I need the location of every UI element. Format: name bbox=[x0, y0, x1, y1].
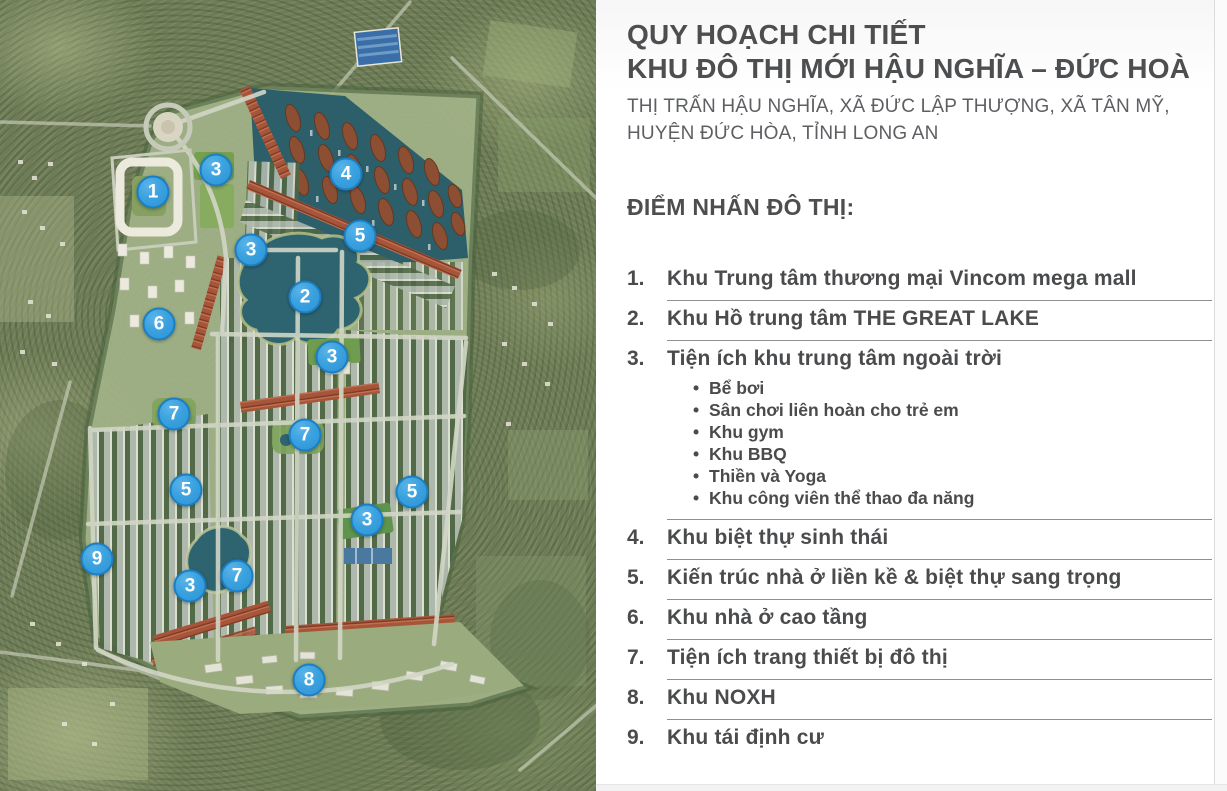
list-item-2: 2. Khu Hồ trung tâm THE GREAT LAKE bbox=[627, 301, 1212, 341]
slide: 13453263775539738 QUY HOẠCH CHI TIẾT KHU… bbox=[0, 0, 1227, 791]
item-number: 5. bbox=[627, 560, 667, 600]
map-marker-1: 1 bbox=[137, 176, 170, 209]
map-marker-4: 4 bbox=[330, 158, 363, 191]
map-marker-3: 3 bbox=[235, 234, 268, 267]
item-number: 1. bbox=[627, 261, 667, 301]
panel-right-strip bbox=[1215, 0, 1227, 791]
map-marker-5: 5 bbox=[396, 476, 429, 509]
sub-bullet: •Sân chơi liên hoàn cho trẻ em bbox=[693, 399, 1212, 421]
item-number: 8. bbox=[627, 680, 667, 720]
map-marker-3: 3 bbox=[200, 154, 233, 187]
map-marker-7: 7 bbox=[289, 419, 322, 452]
item-label: Khu biệt thự sinh thái bbox=[667, 520, 1212, 559]
item-label: Tiện ích khu trung tâm ngoài trời bbox=[667, 341, 1212, 380]
sub-bullet-list: •Bể bơi •Sân chơi liên hoàn cho trẻ em •… bbox=[667, 377, 1212, 519]
sub-bullet: •Khu gym bbox=[693, 421, 1212, 443]
map-marker-5: 5 bbox=[344, 220, 377, 253]
sub-bullet: •Khu công viên thể thao đa năng bbox=[693, 487, 1212, 509]
list-item-8: 8. Khu NOXH bbox=[627, 680, 1212, 720]
list-item-9: 9. Khu tái định cư bbox=[627, 720, 1212, 759]
bullet-icon: • bbox=[693, 487, 709, 509]
item-label: Khu NOXH bbox=[667, 680, 1212, 719]
sub-bullet: •Thiền và Yoga bbox=[693, 465, 1212, 487]
list-item-6: 6. Khu nhà ở cao tầng bbox=[627, 600, 1212, 640]
sub-bullet: •Bể bơi bbox=[693, 377, 1212, 399]
sub-bullet: •Khu BBQ bbox=[693, 443, 1212, 465]
master-plan-map: 13453263775539738 bbox=[0, 0, 596, 791]
map-marker-8: 8 bbox=[293, 664, 326, 697]
list-item-4: 4. Khu biệt thự sinh thái bbox=[627, 520, 1212, 560]
item-number: 6. bbox=[627, 600, 667, 640]
item-number: 4. bbox=[627, 520, 667, 560]
title-line-1: QUY HOẠCH CHI TIẾT bbox=[627, 18, 1213, 52]
list-item-1: 1. Khu Trung tâm thương mại Vincom mega … bbox=[627, 261, 1212, 301]
bullet-icon: • bbox=[693, 399, 709, 421]
list-item-5: 5. Kiến trúc nhà ở liền kề & biệt thự sa… bbox=[627, 560, 1212, 600]
highlight-list: 1. Khu Trung tâm thương mại Vincom mega … bbox=[627, 261, 1213, 759]
map-marker-7: 7 bbox=[158, 398, 191, 431]
map-marker-layer: 13453263775539738 bbox=[0, 0, 596, 791]
bullet-icon: • bbox=[693, 377, 709, 399]
map-marker-9: 9 bbox=[81, 543, 114, 576]
page-title: QUY HOẠCH CHI TIẾT KHU ĐÔ THỊ MỚI HẬU NG… bbox=[627, 18, 1213, 86]
bullet-icon: • bbox=[693, 465, 709, 487]
item-label: Khu Trung tâm thương mại Vincom mega mal… bbox=[667, 261, 1212, 300]
map-marker-6: 6 bbox=[143, 308, 176, 341]
item-label: Tiện ích trang thiết bị đô thị bbox=[667, 640, 1212, 679]
info-panel: QUY HOẠCH CHI TIẾT KHU ĐÔ THỊ MỚI HẬU NG… bbox=[596, 0, 1227, 791]
location-subtitle: THỊ TRẤN HẬU NGHĨA, XÃ ĐỨC LẬP THƯỢNG, X… bbox=[627, 93, 1213, 147]
item-label: Khu nhà ở cao tầng bbox=[667, 600, 1212, 639]
item-label: Khu tái định cư bbox=[667, 720, 1212, 759]
map-marker-7: 7 bbox=[221, 560, 254, 593]
item-number: 9. bbox=[627, 720, 667, 759]
panel-bottom-strip bbox=[596, 784, 1227, 791]
map-marker-3: 3 bbox=[316, 341, 349, 374]
map-marker-5: 5 bbox=[170, 474, 203, 507]
subtitle-line-2: HUYỆN ĐỨC HÒA, TỈNH LONG AN bbox=[627, 120, 1213, 147]
subtitle-line-1: THỊ TRẤN HẬU NGHĨA, XÃ ĐỨC LẬP THƯỢNG, X… bbox=[627, 93, 1213, 120]
bullet-icon: • bbox=[693, 421, 709, 443]
list-item-3: 3. Tiện ích khu trung tâm ngoài trời •Bể… bbox=[627, 341, 1212, 520]
section-heading: ĐIỂM NHẤN ĐÔ THỊ: bbox=[627, 194, 1213, 221]
list-item-7: 7. Tiện ích trang thiết bị đô thị bbox=[627, 640, 1212, 680]
item-number: 3. bbox=[627, 341, 667, 520]
map-marker-3: 3 bbox=[174, 570, 207, 603]
title-line-2: KHU ĐÔ THỊ MỚI HẬU NGHĨA – ĐỨC HOÀ bbox=[627, 52, 1213, 86]
item-number: 7. bbox=[627, 640, 667, 680]
map-marker-2: 2 bbox=[289, 281, 322, 314]
item-number: 2. bbox=[627, 301, 667, 341]
bullet-icon: • bbox=[693, 443, 709, 465]
panel-right-divider bbox=[1214, 0, 1215, 791]
item-label: Khu Hồ trung tâm THE GREAT LAKE bbox=[667, 301, 1212, 340]
map-marker-3: 3 bbox=[351, 504, 384, 537]
item-label: Kiến trúc nhà ở liền kề & biệt thự sang … bbox=[667, 560, 1212, 599]
